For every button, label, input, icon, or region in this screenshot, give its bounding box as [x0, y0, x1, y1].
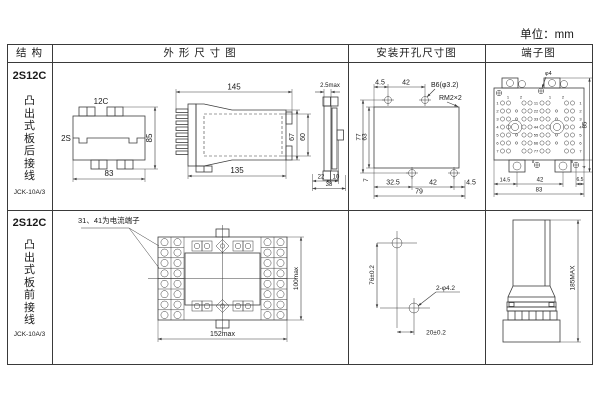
dim-185max: 185MAX: [570, 265, 577, 291]
table-border: [7, 44, 8, 365]
dim-42-top: 42: [402, 80, 410, 87]
terminal-row-num: 3: [579, 117, 582, 122]
dim-42-terminal: 42: [537, 178, 544, 184]
dim-4-5-top: 4.5: [375, 80, 385, 87]
thread-spec-label: RM2×2: [439, 95, 462, 102]
terminal-row-num: 6: [579, 141, 582, 146]
terminal-row-num: 1: [496, 101, 499, 106]
dim-152max: 152max: [210, 331, 235, 338]
terminal-top-num: 1: [507, 95, 510, 100]
dim-83-terminal: 83: [536, 188, 543, 194]
dim-6-5: 6.5: [577, 177, 584, 183]
hole-spec-label-row2: 2-φ4.2: [436, 285, 455, 292]
terminal-row-num: 7: [496, 149, 499, 154]
dim-67: 67: [289, 133, 296, 141]
terminal-row-num: 2: [579, 109, 582, 114]
terminal-pair-num: 44: [534, 125, 539, 130]
front-view-body: [73, 107, 145, 169]
dim-10: 10: [333, 175, 340, 181]
dim-145: 145: [227, 83, 241, 92]
cutout-rect: [374, 107, 459, 168]
terminal-pair-num: 22: [534, 109, 539, 114]
terminal-row-num: 1: [579, 101, 582, 106]
dim-100max: 100max: [293, 266, 300, 290]
terminal-blocks: [148, 225, 296, 332]
unit-label: 单位：mm: [492, 26, 600, 42]
row1-code: JCK-10A/3: [7, 189, 52, 196]
row2-model: 2S12C: [7, 217, 52, 229]
rear-view-drawing: 2.5max 22 10 38: [312, 80, 350, 192]
terminal-row-num: 2: [496, 109, 499, 114]
front-view-drawing: 12C 2S 85 83: [55, 80, 167, 188]
terminal-pair-num: 55: [534, 133, 539, 138]
table-border: [485, 44, 486, 365]
terminal-top-num: 2: [562, 95, 565, 100]
terminal-drawing-row2: 185MAX: [495, 212, 595, 352]
dim-7: 7: [363, 178, 370, 182]
terminal-drawing-row1: φ4 1 2 1 2 1 2 3 4 5 6 7 1 2 3 4 5 6 7 1…: [488, 68, 594, 210]
header-terminal: 端子图: [485, 44, 592, 62]
dim-85: 85: [145, 133, 154, 142]
dim-42-bottom: 42: [429, 180, 437, 187]
terminal-pair-num: 66: [534, 141, 539, 146]
dim-20: 20±0.2: [426, 330, 446, 337]
terminal-row-num: 6: [496, 141, 499, 146]
terminal-row-num: 4: [496, 125, 499, 130]
row1-structure-desc: 凸出式板后接线: [22, 95, 37, 183]
header-outline: 外 形 尺 寸 图: [52, 44, 348, 62]
table-border: [7, 210, 593, 211]
dim-76: 76±0.2: [369, 265, 376, 285]
terminal-pair-num: 11: [534, 101, 539, 106]
terminal-pair-num: 77: [534, 149, 539, 154]
dim-60: 60: [300, 133, 307, 141]
dim-63: 63: [362, 133, 369, 141]
label-2s: 2S: [61, 134, 71, 143]
terminal-profile: [503, 220, 560, 342]
dim-83: 83: [105, 169, 114, 178]
terminal-top-num: 1: [549, 95, 552, 100]
table-border: [7, 364, 593, 365]
header-mounting: 安装开孔尺寸图: [348, 44, 485, 62]
mounting-drawing-row1: 4.5 42 B6(φ3.2) RM2×2 77 63 7 32.5 42 4.…: [355, 75, 485, 205]
row1-model: 2S12C: [7, 70, 52, 82]
terminal-row-num: 5: [579, 133, 582, 138]
row2-structure-desc: 凸出式板前接线: [22, 239, 37, 327]
drawing-sheet: 单位：mm 结 构 外 形 尺 寸 图 安装开孔尺寸图 端子图 2S12C 凸出…: [0, 0, 600, 400]
side-view-drawing: 145 135 67 60: [168, 80, 314, 188]
dim-4-5-bottom: 4.5: [466, 180, 476, 187]
rear-view-body: [323, 97, 344, 180]
terminal-top-num: 2: [520, 95, 523, 100]
current-terminal-note: 31、41为电流端子: [78, 215, 140, 226]
mounting-drawing-row2: 76±0.2 2-φ4.2 20±0.2: [360, 228, 482, 346]
terminal-pair-num: 33: [534, 117, 539, 122]
dim-14-5: 14.5: [500, 178, 511, 184]
terminal-row-num: 7: [579, 149, 582, 154]
dim-135: 135: [230, 166, 244, 175]
front-view-drawing-row2: 152max 100max: [148, 225, 320, 345]
terminal-row-num: 5: [496, 133, 499, 138]
table-border: [52, 44, 53, 365]
terminal-row-num: 3: [496, 117, 499, 122]
dim-32-5: 32.5: [386, 180, 400, 187]
dim-2-5max: 2.5max: [320, 83, 340, 89]
dim-phi4: φ4: [545, 71, 552, 77]
header-structure: 结 构: [7, 44, 52, 62]
dim-38: 38: [326, 182, 333, 188]
hole-spec-label: B6(φ3.2): [431, 82, 459, 89]
dim-79: 79: [415, 189, 423, 196]
dim-22: 22: [318, 175, 325, 181]
dim-85-terminal: 85: [583, 121, 589, 128]
table-border: [7, 62, 593, 63]
mounting-holes-row2: [377, 231, 430, 335]
label-12c: 12C: [94, 97, 109, 106]
row2-code: JCK-10A/3: [7, 331, 52, 338]
